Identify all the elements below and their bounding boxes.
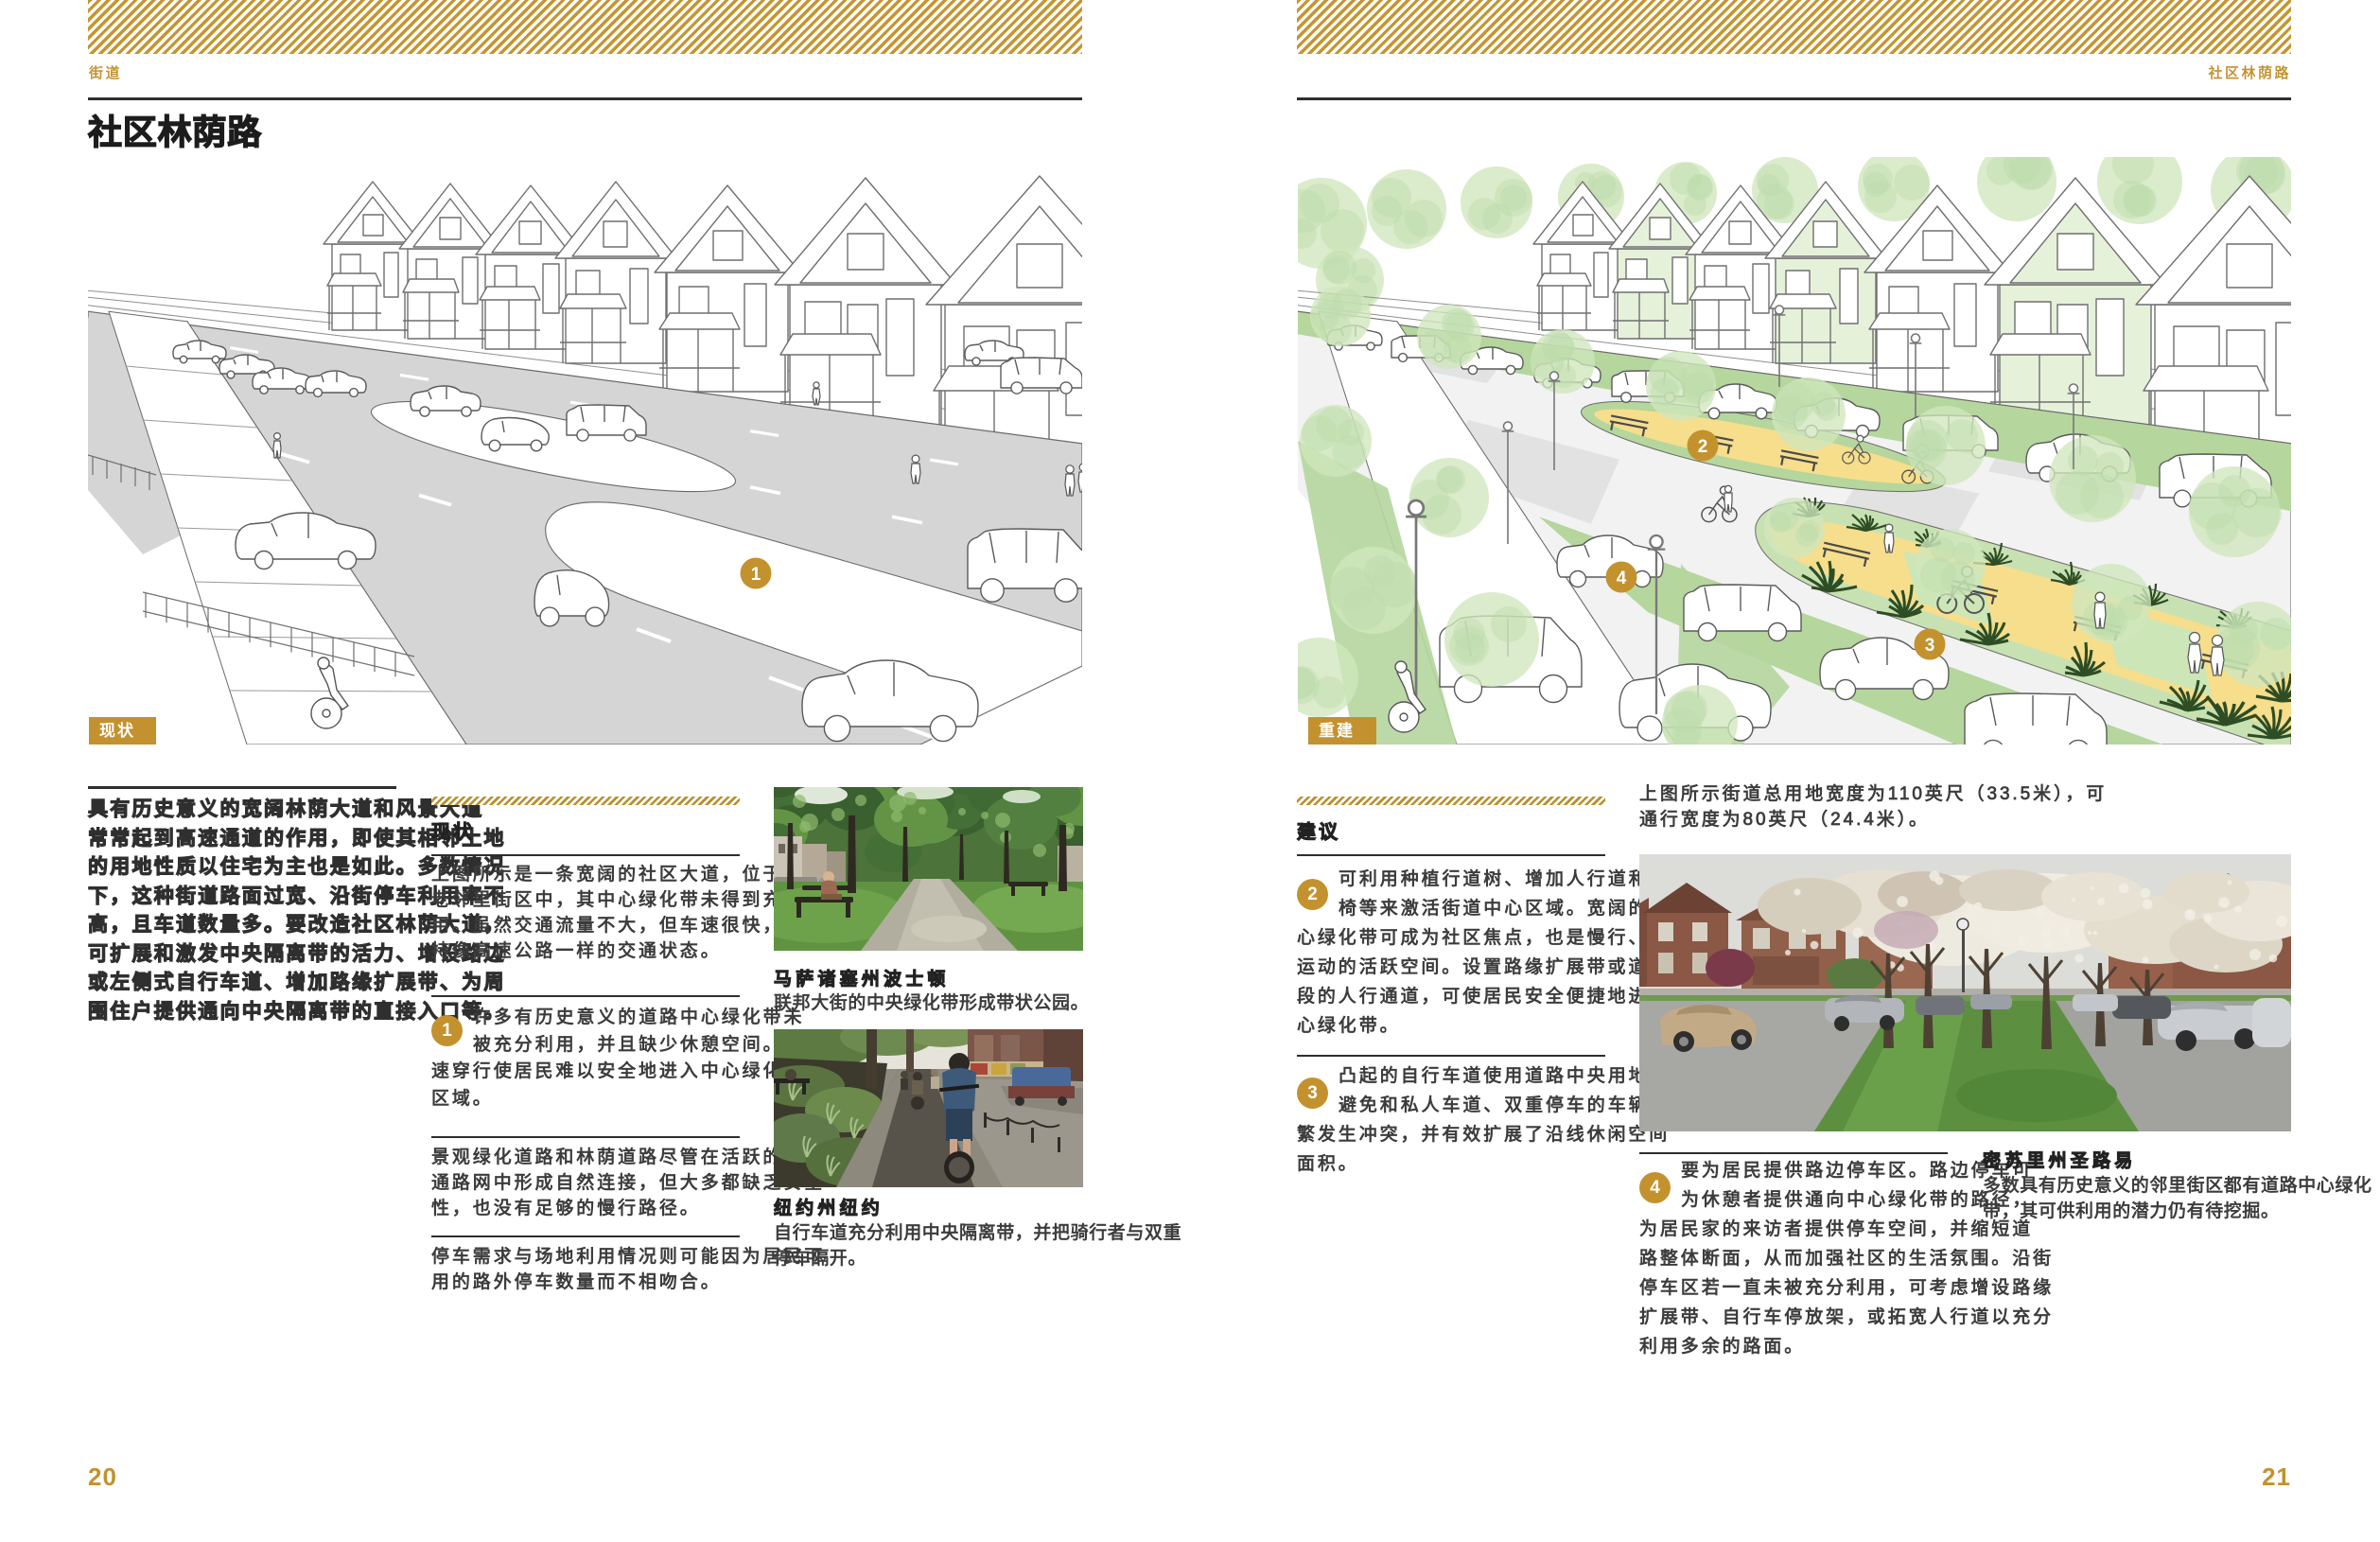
svg-text:4: 4: [1617, 569, 1627, 588]
svg-text:3: 3: [1925, 636, 1935, 656]
svg-text:1: 1: [751, 565, 761, 585]
svg-text:2: 2: [1698, 437, 1708, 457]
